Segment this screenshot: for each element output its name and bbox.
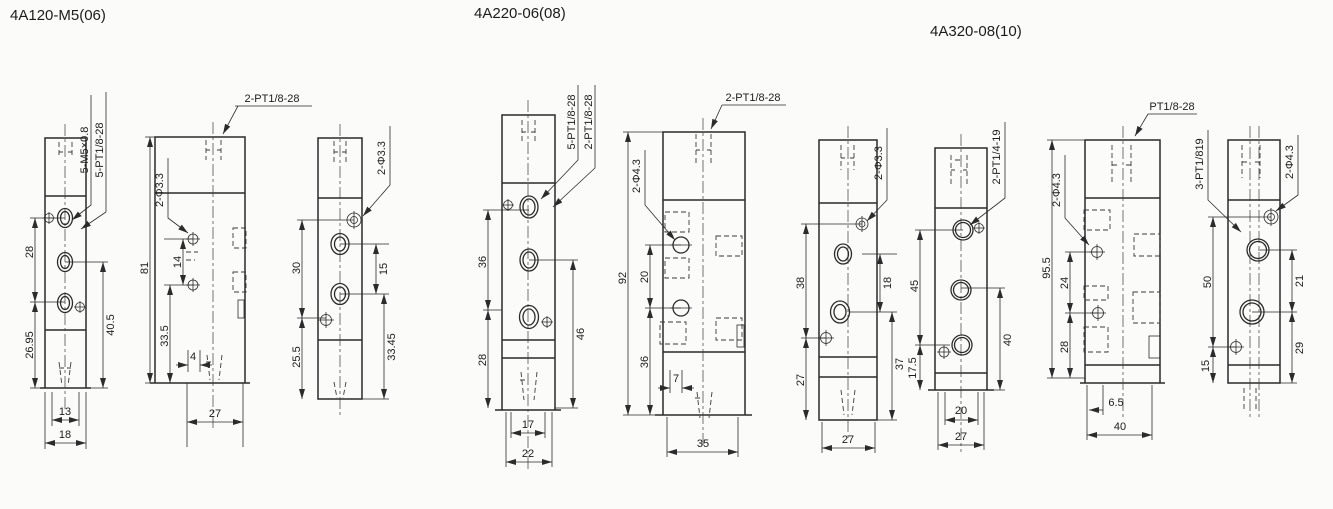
dim-label: 35	[697, 438, 709, 450]
group-title-4a320: 4A320-08(10)	[930, 23, 1022, 40]
dim-label: 28	[24, 246, 36, 258]
dim-label: 45	[909, 280, 921, 292]
group-title-4a220: 4A220-06(08)	[474, 5, 566, 22]
dim-label: 95.5	[1041, 257, 1053, 278]
dim-label: 46	[575, 328, 587, 340]
view-4a120-back: 30 25.5 15 33.45 2-Φ3.3	[291, 124, 398, 415]
dim-label: 27	[209, 408, 221, 420]
dim-label: 33.45	[386, 333, 398, 361]
dim-label: 17.5	[907, 357, 919, 378]
port-label: 5-M5×0.8	[79, 127, 91, 174]
dim-label: 40.5	[105, 314, 117, 335]
port-label: 2-Φ4.3	[631, 159, 643, 193]
dim-label: 21	[1294, 275, 1306, 287]
port-label: 2-PT1/8-28	[244, 93, 299, 105]
dim-label: 22	[522, 448, 534, 460]
port-label: 2-Φ3.3	[376, 141, 388, 175]
dim-label: 36	[639, 356, 651, 368]
dim-label: 17	[522, 419, 534, 431]
port-label: 2-Φ3.3	[154, 173, 166, 207]
port-label: PT1/8-28	[1149, 101, 1194, 113]
port-label: 2-Φ4.3	[1284, 145, 1296, 179]
holes	[1089, 244, 1106, 321]
view-4a320-front: 45 17.5 40 20 27 2-PT1/4-19	[907, 122, 1014, 452]
holes	[318, 211, 361, 328]
dim-label: 50	[1202, 276, 1214, 288]
dim-label: 14	[172, 256, 184, 268]
port-label: 2-PT1/8-28	[583, 94, 595, 149]
dim-label: 40	[1114, 421, 1126, 433]
group-title-4a120: 4A120-M5(06)	[10, 7, 106, 24]
view-4a120-side: 81 14 33.5 4 27 2-PT1/8-28 2-Φ3.3	[139, 93, 312, 447]
dim-label: 30	[291, 262, 303, 274]
port-label: 2-PT1/4-19	[991, 129, 1003, 184]
port-label: 3-PT1/819	[1194, 138, 1206, 189]
drawing-svg: 4A120-M5(06) 4A220-06(08) 4A320-08(10) 2…	[0, 0, 1333, 509]
dim-label: 4	[190, 351, 196, 363]
dim-label: 40	[1002, 334, 1014, 346]
port-label: 5-PT1/8-28	[94, 122, 106, 177]
dim-label: 6.5	[1108, 397, 1123, 409]
dim-label: 20	[639, 271, 651, 283]
holes	[502, 196, 553, 329]
view-4a120-front: 28 26.95 40.5 13 18 5-M5×0.8 5-PT1/8-28	[24, 92, 117, 449]
holes	[186, 232, 200, 292]
dim-label: 29	[1294, 342, 1306, 354]
dim-label: 13	[59, 406, 71, 418]
dim-label: 15	[1200, 360, 1212, 372]
valve-dimension-drawing: 4A120-M5(06) 4A220-06(08) 4A320-08(10) 2…	[0, 0, 1333, 509]
port-label: 2-Φ4.3	[1051, 173, 1063, 207]
dim-label: 15	[378, 263, 390, 275]
holes	[818, 216, 868, 346]
view-4a220-back: 38 27 18 37 27 2-Φ3.3	[795, 126, 906, 453]
dim-label: 81	[139, 262, 151, 274]
dim-label: 18	[59, 429, 71, 441]
dim-label: 7	[673, 373, 679, 385]
dim-label: 27	[842, 434, 854, 446]
dim-label: 38	[795, 277, 807, 289]
dim-label: 33.5	[159, 325, 171, 346]
holes	[1228, 208, 1278, 355]
view-4a220-front: 36 28 46 17 22 5-PT1/8-28 2-PT1/8-28	[477, 85, 595, 470]
view-4a320-back: 50 15 21 29 3-PT1/819 2-Φ4.3	[1194, 126, 1306, 420]
dim-label: 26.95	[24, 331, 36, 359]
port-label: 2-PT1/8-28	[725, 92, 780, 104]
dim-label: 36	[477, 256, 489, 268]
port-label: 2-Φ3.3	[873, 146, 885, 180]
dim-label: 24	[1059, 277, 1071, 289]
dim-label: 20	[955, 405, 967, 417]
dim-label: 18	[882, 277, 894, 289]
dim-label: 28	[477, 354, 489, 366]
port-label: 5-PT1/8-28	[566, 94, 578, 149]
dim-label: 92	[617, 272, 629, 284]
view-4a220-side: 92 20 36 7 35 2-PT1/8-28 2-Φ4.3	[617, 92, 786, 457]
holes	[43, 209, 86, 314]
dim-label: 37	[894, 358, 906, 370]
dim-label: 25.5	[291, 346, 303, 367]
dim-label: 28	[1059, 341, 1071, 353]
view-4a320-side: 95.5 24 28 6.5 40 PT1/8-28 2-Φ4.3	[1041, 101, 1197, 440]
dim-label: 27	[955, 431, 967, 443]
dim-label: 27	[795, 374, 807, 386]
